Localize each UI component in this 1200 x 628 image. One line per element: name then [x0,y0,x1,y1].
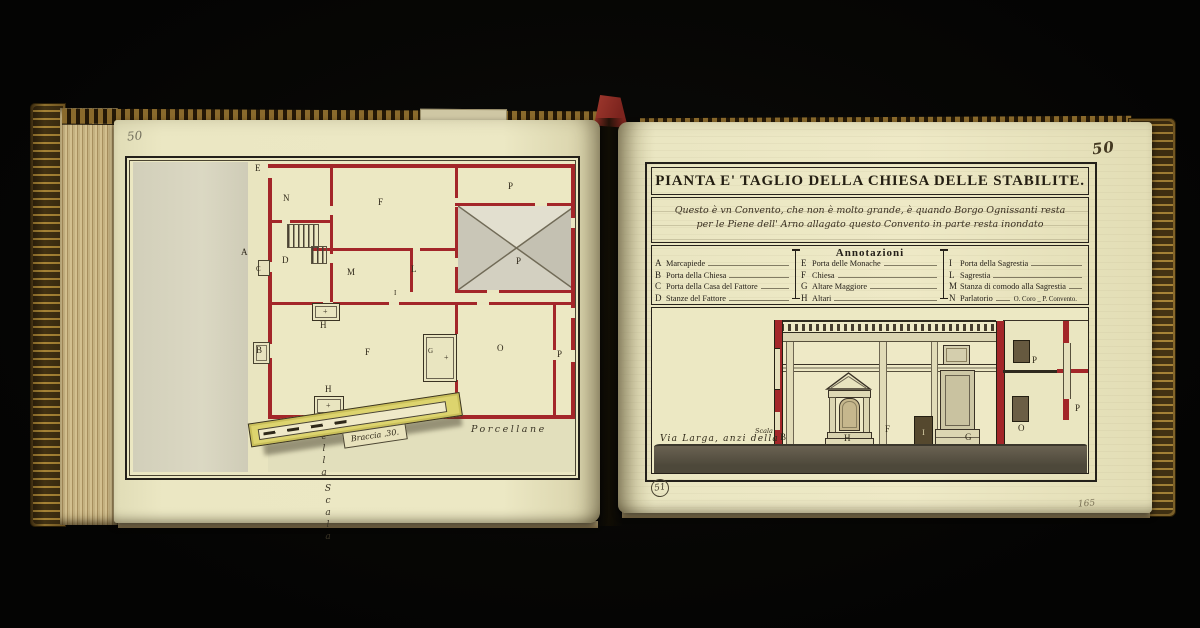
street-via-della-scala [133,162,249,472]
annotation-key: L [949,270,960,280]
annotation-leader [1031,265,1082,266]
altare-maggiore-plan: + [423,334,457,382]
annotation-label: Parlatorio [960,294,993,303]
annotation-label: Stanze del Fattore [666,294,726,303]
courtyard-diagonals [458,206,575,290]
annotation-row: EPorta delle Monache [801,258,940,270]
annotation-label: Altari [812,294,831,303]
annotations-column-1: AMarcapiede BPorta della Chiesa CPorta d… [655,258,792,304]
annotation-key: F [801,270,812,280]
annotation-label: Altare Maggiore [812,282,867,291]
aedicula-column-right [863,397,870,435]
street-word-scala: Scala [323,484,333,544]
annotation-leader [834,300,937,301]
aedicula-pediment [825,370,872,391]
right-folio-number: 50 [1091,138,1116,159]
annotation-key: G [801,281,812,291]
room-label-L: L [411,265,417,274]
annotation-row: LSagrestia [949,270,1085,282]
annotations-separator-1 [795,250,796,298]
portal-frame [940,370,975,431]
annotation-label: Chiesa [812,271,835,280]
cut-wall-right [996,321,1005,446]
annotation-label: Porta della Chiesa [666,271,726,280]
label-H-altar-south: H [325,385,332,394]
opening-cn-3 [477,302,489,305]
room-label-N: N [283,194,290,203]
annotation-key: I [949,258,960,268]
cut-wall-left-gap-1 [775,348,780,390]
photo-background: 50 Via della Scala [0,0,1200,628]
annotation-label: Sagrestia [960,271,990,280]
portal-upper-panel-inner [946,348,967,362]
annotation-key: N [949,293,960,303]
wall-courtyard-west [455,164,458,293]
plate-frame: PIANTA E' TAGLIO DELLA CHIESA DELLE STAB… [645,162,1097,482]
annotation-row: CPorta della Casa del Fattore [655,281,792,293]
window-east-2 [571,308,575,318]
annotation-suffix: O. Coro _ P. Convento. [1014,296,1077,303]
opening-v1-a [330,206,333,215]
elevation-label-G: G [965,433,972,442]
room-label-D: D [282,256,289,265]
annotation-key: H [801,293,812,303]
annotation-row: IPorta della Sagrestia [949,258,1085,270]
altare-maggiore-inner [426,337,454,379]
annotation-label: Porta delle Monache [812,259,881,268]
annotation-key: B [655,270,666,280]
annotation-key: D [655,293,666,303]
window-east-1 [571,218,575,228]
room-label-P-corridor: P [508,182,513,191]
annotation-row: FChiesa [801,270,940,282]
annotation-row: NParlatorioO. Coro _ P. Convento. [949,293,1085,305]
annotation-key: E [801,258,812,268]
label-A-marcapiede: A [241,248,248,257]
opening-v1-b [330,254,333,263]
annotations-separator-2 [943,250,944,298]
portal-upper-panel [943,345,970,365]
room-label-F-hall: F [378,198,383,207]
annotation-leader [761,288,789,289]
annotation-row: DStanze del Fattore [655,293,792,305]
portal-frame-inner [945,375,970,426]
cut-wall-left-gap-2 [775,412,780,430]
label-B-entrance: B [256,346,262,355]
elevation-label-P-right: P [1075,404,1080,413]
opening-nd [282,220,290,223]
annotation-leader [708,265,789,266]
elevation-scala-label: Scala [755,427,773,435]
aedicula-niche [839,398,860,431]
elevation-label-B: B [780,433,786,442]
gold-tooling-pattern-left [33,106,63,524]
ground-wash [654,444,1087,474]
annotation-row: BPorta della Chiesa [655,270,792,282]
page-edges-left [60,108,118,525]
annotation-row: AMarcapiede [655,258,792,270]
screenshot-root: { "colors": { "paper": "#ece8c4", "wall_… [0,0,1200,628]
annotation-leader [996,300,1010,301]
elevation-label-I: I [922,428,925,437]
annotation-label: Porta della Casa del Fattore [666,282,758,291]
cornice-top-line [781,320,996,322]
label-G-altare: G [428,347,433,356]
annotations-box: Annotazioni AMarcapiede BPorta della Chi… [651,245,1089,305]
annotations-column-2: EPorta delle Monache FChiesa GAltare Mag… [801,258,940,304]
label-P-door-east: P [557,350,562,359]
annex-right-wall-bottom [1063,399,1069,420]
portal-step-line [936,437,979,438]
wall-courtyard-top [455,203,575,206]
aedicula-column-left [829,397,836,435]
opening-cn-2 [389,302,399,305]
room-label-F-nave: F [365,348,370,357]
pilaster-1 [786,342,794,446]
wall-coro-east [553,305,556,418]
altar-cross-mark: + [444,353,449,362]
subtitle-line-1: Questo è vn Convento, che non è molto gr… [652,205,1088,216]
room-label-O-coro: O [497,344,504,353]
wall-row-top [313,248,455,251]
left-folio-number: 50 [126,128,142,143]
annex-right-wall-window [1063,343,1071,399]
annex-right-wall-top [1063,321,1069,343]
annotation-row: HAltari [801,293,940,305]
altar-north: + [312,303,340,321]
annotation-row: MStanza di comodo alla Sagrestia [949,281,1085,293]
wall-courtyard-bottom [455,290,575,293]
annotation-label: Porta della Sagrestia [960,259,1028,268]
room-label-P-courtyard: P [516,257,521,266]
wall-n-d-divider [268,220,330,223]
annotation-label: Stanza di comodo alla Sagrestia [960,282,1066,291]
annex-upper-window [1013,340,1030,363]
plate-subtitle-box: Questo è vn Convento, che non è molto gr… [651,197,1089,243]
annotation-label: Marcapiede [666,259,705,268]
annotation-leader [1069,288,1082,289]
annex-floor-red [1057,369,1089,373]
annotation-row: GAltare Maggiore [801,281,940,293]
cornice-frieze [781,333,996,342]
wall-west [268,164,272,418]
street-bottom-porcellane: Porcellane [471,424,547,435]
wall-north [268,164,575,168]
elevation-label-H: H [844,434,851,443]
scale-ruler-ticks [263,419,352,435]
stairs-secondary [311,246,327,264]
annotation-leader [729,277,789,278]
opening-cw-2 [455,258,458,267]
plate-title: PIANTA E' TAGLIO DELLA CHIESA DELLE STAB… [651,167,1089,195]
opening-ct [535,203,547,206]
label-C-door: C [256,265,261,274]
wall-interior-v1 [330,164,333,302]
annotation-leader [870,288,937,289]
aedicula-niche-inner [842,401,857,428]
corner-pencil-mark: 165 [1078,498,1096,509]
altar-cross-mark: + [323,307,328,316]
annotation-leader [729,300,789,301]
subtitle-line-2: per le Piene dell' Arno allagato questo … [652,219,1088,230]
annotation-leader [838,277,937,278]
room-label-E: E [255,164,261,173]
elevation-label-O: O [1018,424,1025,433]
annotation-key: A [655,258,666,268]
annex-lower-window [1012,396,1029,422]
opening-coro [553,350,556,360]
cornice-dentils [781,324,996,331]
opening-cb [487,290,499,293]
door-I-opening [410,292,413,302]
door-E-opening [268,168,272,178]
annotations-column-3: IPorta della Sagrestia LSagrestia MStanz… [949,258,1085,304]
stairs-main [287,224,319,248]
annotation-leader [993,277,1082,278]
elevation-drawing-box: I Via Larga, anzi della Scala [651,307,1089,474]
elevation-street-label: Via Larga, anzi della [660,434,779,444]
elevation-label-F: F [885,425,890,434]
label-H-altar-north: H [320,321,327,330]
annotation-key: C [655,281,666,291]
elevation-label-P-upper: P [1032,356,1037,365]
label-I-door: I [394,289,396,298]
annotation-leader [884,265,937,266]
door-P-opening [571,350,575,362]
annotation-key: M [949,281,960,291]
room-label-M: M [347,268,355,277]
